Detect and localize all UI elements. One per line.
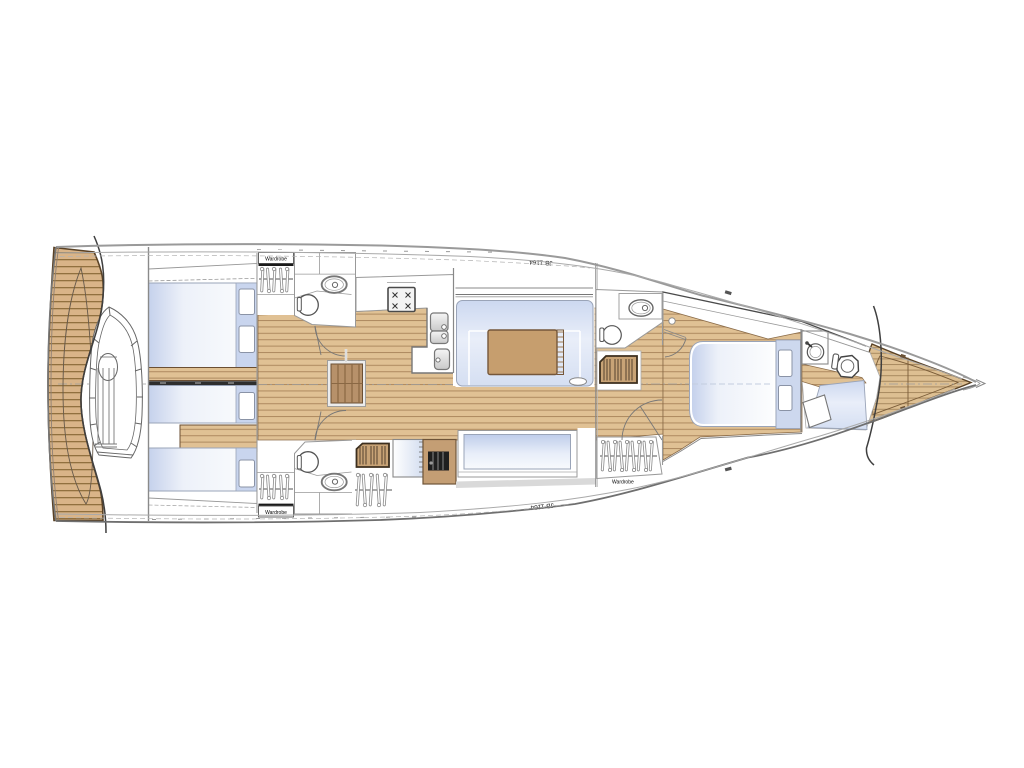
- svg-text:Wardrobe: Wardrobe: [265, 257, 287, 263]
- svg-text:Wardrobe: Wardrobe: [612, 480, 634, 486]
